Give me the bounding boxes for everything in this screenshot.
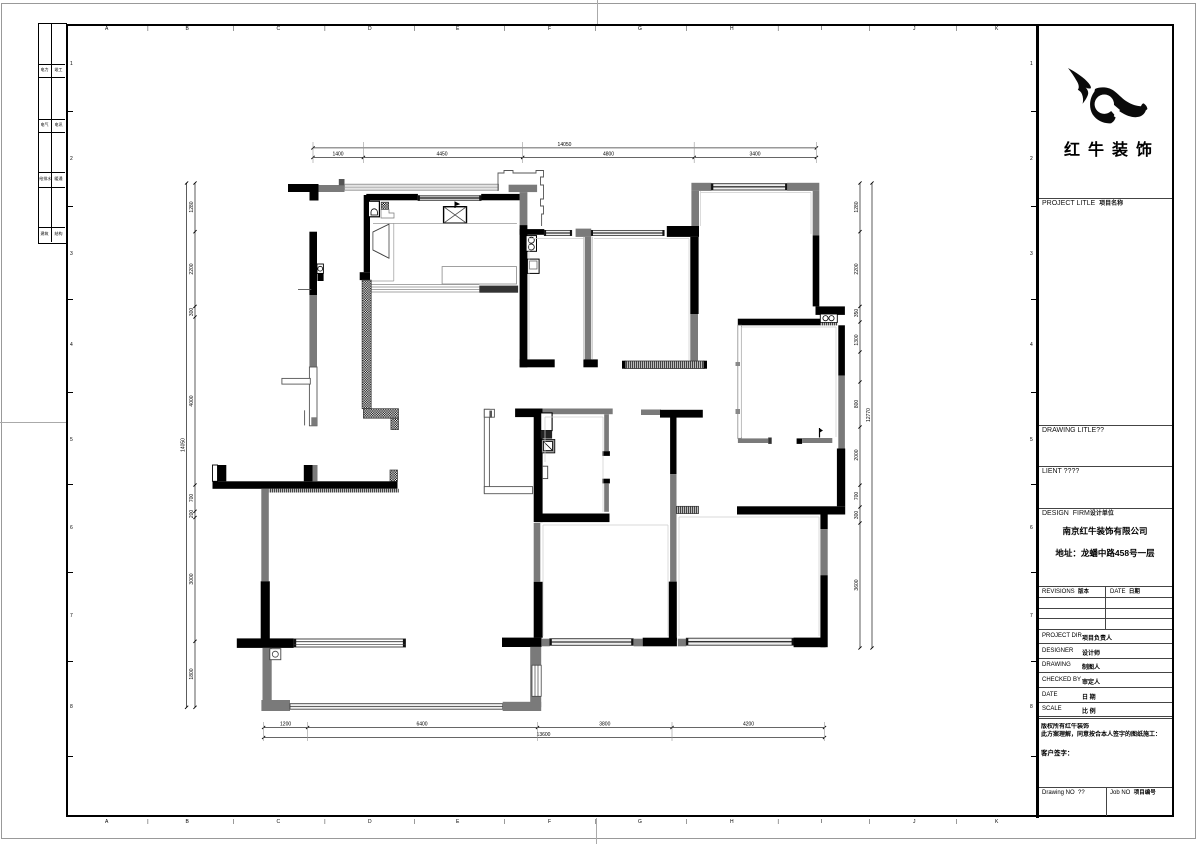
- svg-text:4200: 4200: [743, 722, 754, 728]
- svg-text:700: 700: [854, 492, 860, 501]
- svg-text:1300: 1300: [854, 334, 860, 345]
- svg-text:4800: 4800: [603, 152, 614, 158]
- svg-text:200: 200: [189, 510, 195, 519]
- svg-text:2000: 2000: [854, 449, 860, 460]
- svg-text:350: 350: [854, 309, 860, 318]
- svg-text:3600: 3600: [854, 579, 860, 590]
- svg-text:4450: 4450: [436, 152, 447, 158]
- svg-text:1400: 1400: [332, 152, 343, 158]
- svg-text:2200: 2200: [189, 263, 195, 274]
- svg-text:300: 300: [189, 308, 195, 317]
- svg-text:4000: 4000: [189, 395, 195, 406]
- svg-text:14050: 14050: [181, 438, 187, 452]
- svg-text:1280: 1280: [854, 201, 860, 212]
- svg-text:700: 700: [189, 494, 195, 503]
- svg-text:1800: 1800: [189, 668, 195, 679]
- svg-text:3400: 3400: [749, 152, 760, 158]
- svg-text:6400: 6400: [416, 722, 427, 728]
- svg-text:1200: 1200: [280, 722, 291, 728]
- svg-text:3800: 3800: [599, 722, 610, 728]
- svg-text:13600: 13600: [537, 732, 551, 738]
- svg-text:3000: 3000: [189, 573, 195, 584]
- svg-text:300: 300: [854, 511, 860, 520]
- svg-text:1280: 1280: [189, 201, 195, 212]
- svg-text:14050: 14050: [558, 142, 572, 148]
- svg-text:800: 800: [854, 400, 860, 409]
- svg-text:2200: 2200: [854, 263, 860, 274]
- svg-text:12770: 12770: [866, 408, 872, 422]
